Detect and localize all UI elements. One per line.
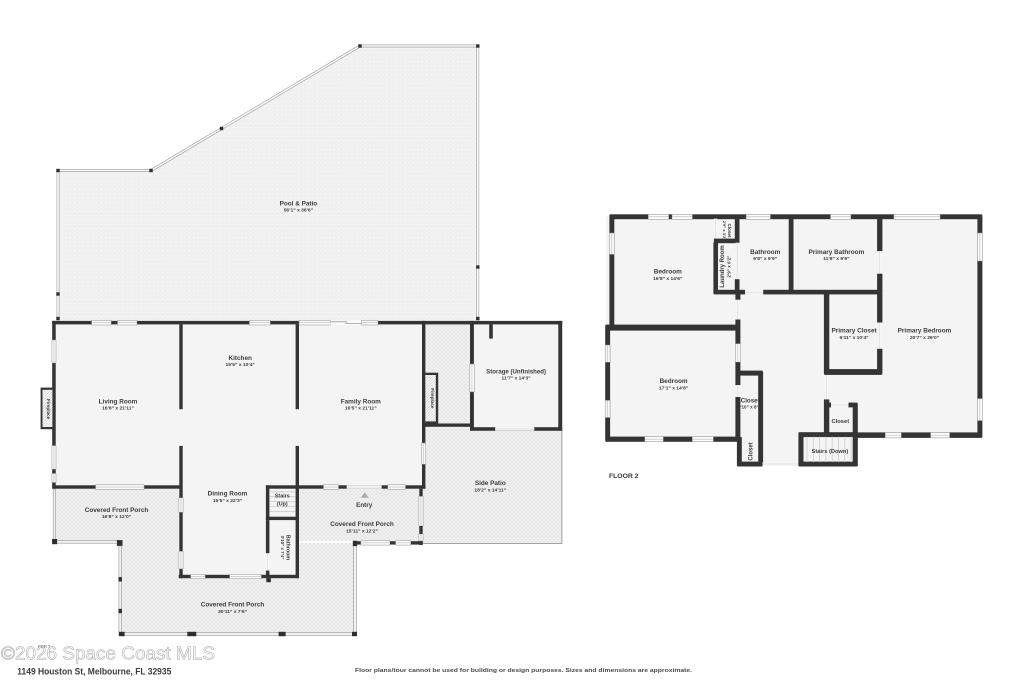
svg-text:Laundry Room: Laundry Room bbox=[720, 245, 726, 287]
svg-text:Living Room: Living Room bbox=[99, 398, 138, 405]
svg-text:Floor plans/tour cannot be use: Floor plans/tour cannot be used for buil… bbox=[355, 668, 692, 674]
svg-text:Closet: Closet bbox=[748, 442, 754, 460]
svg-text:1149 Houston St, Melbourne, FL: 1149 Houston St, Melbourne, FL 32935 bbox=[17, 667, 171, 677]
svg-text:Family Room: Family Room bbox=[341, 398, 381, 405]
svg-text:Primary Bedroom: Primary Bedroom bbox=[898, 328, 952, 335]
svg-text:2’9” x 6’2”: 2’9” x 6’2” bbox=[726, 255, 731, 277]
svg-text:FLOOR 2: FLOOR 2 bbox=[609, 473, 639, 480]
svg-text:Closet: Closet bbox=[741, 397, 760, 404]
svg-text:20’7” x 29’0”: 20’7” x 29’0” bbox=[910, 335, 940, 341]
svg-text:15’5” x 22’3”: 15’5” x 22’3” bbox=[213, 498, 243, 504]
svg-text:©2026 Space Coast MLS: ©2026 Space Coast MLS bbox=[1, 644, 215, 664]
svg-text:16’8” x 21’11”: 16’8” x 21’11” bbox=[102, 406, 134, 412]
svg-text:16’5” x 21’11”: 16’5” x 21’11” bbox=[345, 406, 377, 412]
svg-text:Covered Front Porch: Covered Front Porch bbox=[330, 521, 394, 528]
svg-text:Dining Room: Dining Room bbox=[208, 491, 248, 498]
svg-text:Side Patio: Side Patio bbox=[475, 480, 506, 487]
svg-text:Entry: Entry bbox=[356, 502, 373, 509]
svg-text:Stairs (Down): Stairs (Down) bbox=[812, 449, 849, 455]
svg-text:16’8” x 14’6”: 16’8” x 14’6” bbox=[653, 276, 683, 282]
svg-text:17’1” x 14’8”: 17’1” x 14’8” bbox=[659, 385, 689, 391]
svg-text:Closet: Closet bbox=[831, 419, 849, 425]
svg-text:Bedroom: Bedroom bbox=[654, 269, 682, 276]
svg-text:15’11” x 12’2”: 15’11” x 12’2” bbox=[346, 528, 378, 534]
svg-text:Fireplace: Fireplace bbox=[46, 399, 51, 420]
svg-text:2’9” x 3’2”: 2’9” x 3’2” bbox=[722, 221, 727, 241]
svg-text:Fireplace: Fireplace bbox=[430, 388, 435, 409]
svg-text:2’10” x 8’2”: 2’10” x 8’2” bbox=[738, 405, 763, 410]
svg-text:56’1” x 36’6”: 56’1” x 36’6” bbox=[284, 208, 314, 214]
svg-text:Storage (Unfinished): Storage (Unfinished) bbox=[486, 368, 546, 375]
svg-text:Bedroom: Bedroom bbox=[660, 378, 688, 385]
svg-text:Primary Bathroom: Primary Bathroom bbox=[809, 249, 865, 256]
svg-text:3’10” x 7’4”: 3’10” x 7’4” bbox=[280, 536, 285, 560]
svg-text:FOR T: FOR T bbox=[38, 644, 51, 649]
svg-text:16’8” x 12’0”: 16’8” x 12’0” bbox=[102, 514, 132, 520]
svg-text:Stairs: Stairs bbox=[275, 494, 290, 500]
svg-text:11’8” x 9’9”: 11’8” x 9’9” bbox=[823, 256, 850, 262]
svg-text:6’11” x 10’4”: 6’11” x 10’4” bbox=[840, 335, 870, 341]
svg-text:Primary Closet: Primary Closet bbox=[832, 328, 878, 335]
svg-text:Pool & Patio: Pool & Patio bbox=[280, 201, 318, 208]
svg-text:11’7” x 14’3”: 11’7” x 14’3” bbox=[502, 376, 532, 382]
svg-text:Covered Front Porch: Covered Front Porch bbox=[201, 602, 265, 609]
svg-text:6’8” x 9’9”: 6’8” x 9’9” bbox=[753, 256, 777, 262]
svg-text:30’11” x 7’6”: 30’11” x 7’6” bbox=[218, 609, 248, 615]
svg-text:Bathroom: Bathroom bbox=[750, 249, 780, 256]
svg-text:Kitchen: Kitchen bbox=[228, 355, 252, 362]
svg-text:18’2” x 14’11”: 18’2” x 14’11” bbox=[474, 487, 506, 493]
svg-text:(Up): (Up) bbox=[277, 501, 288, 507]
svg-text:Covered Front Porch: Covered Front Porch bbox=[85, 507, 149, 514]
svg-text:15’5” x 10’4”: 15’5” x 10’4” bbox=[226, 362, 256, 368]
